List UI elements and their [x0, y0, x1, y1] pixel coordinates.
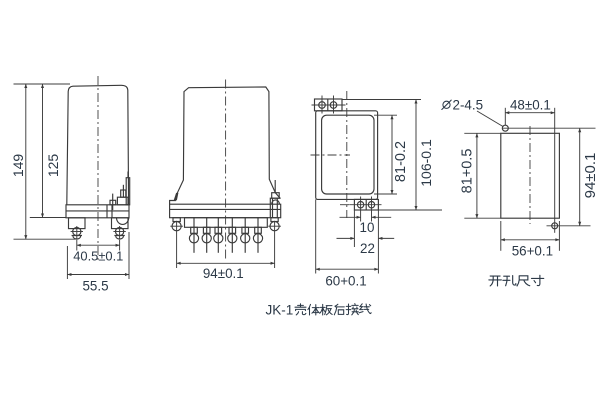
- svg-text:149: 149: [10, 154, 26, 178]
- svg-text:JK-1: JK-1: [266, 303, 294, 318]
- svg-text:10: 10: [360, 220, 375, 235]
- svg-text:56+0.1: 56+0.1: [512, 243, 553, 258]
- svg-text:2-4.5: 2-4.5: [453, 98, 484, 113]
- svg-text:94±0.1: 94±0.1: [582, 153, 599, 199]
- svg-text:125: 125: [45, 154, 61, 178]
- svg-text:22: 22: [360, 241, 375, 256]
- svg-text:40.5±0.1: 40.5±0.1: [73, 249, 123, 264]
- svg-text:81+0.5: 81+0.5: [459, 149, 475, 194]
- svg-text:81-0.2: 81-0.2: [393, 141, 409, 182]
- svg-text:94±0.1: 94±0.1: [203, 266, 244, 281]
- svg-text:106-0.1: 106-0.1: [418, 139, 434, 187]
- svg-text:48±0.1: 48±0.1: [510, 98, 551, 113]
- svg-text:60+0.1: 60+0.1: [325, 273, 366, 288]
- svg-text:55.5: 55.5: [82, 278, 108, 293]
